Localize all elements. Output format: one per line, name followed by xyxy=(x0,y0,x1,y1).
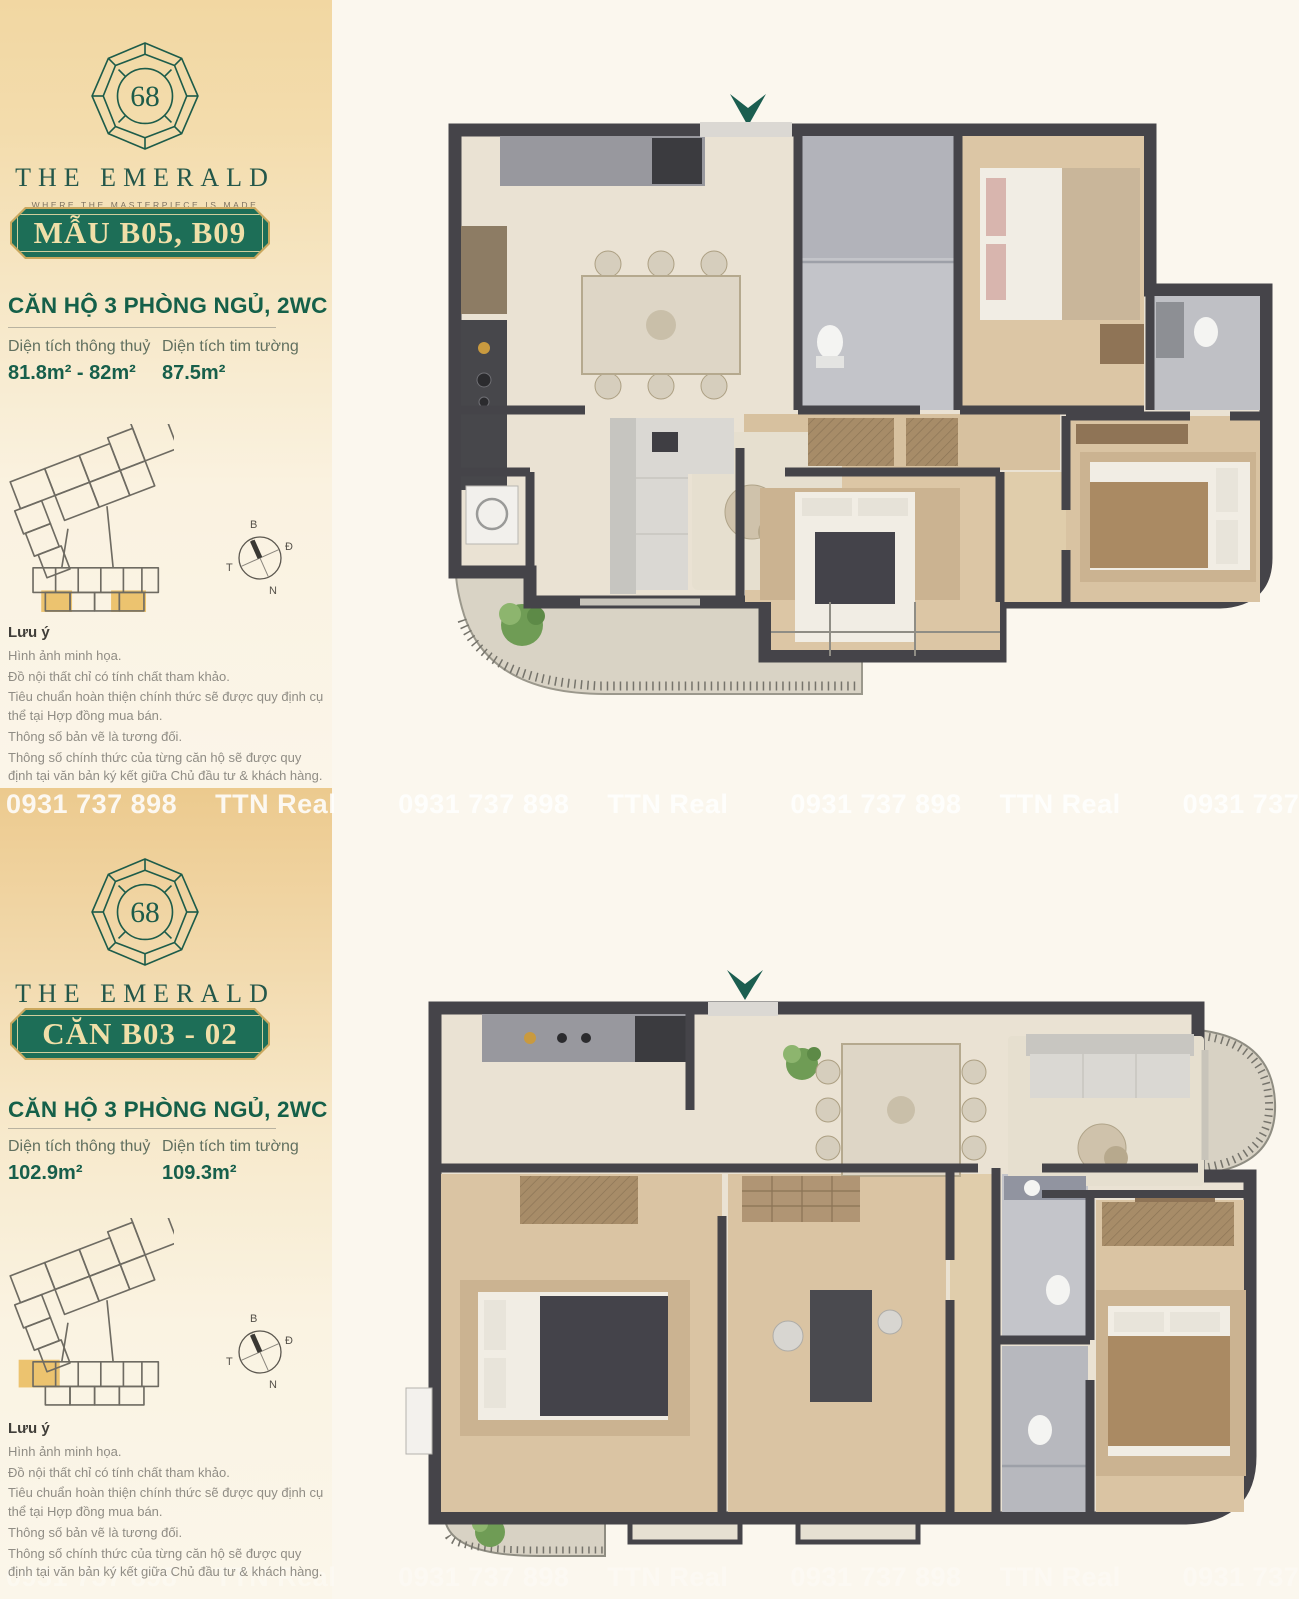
floor-plan-b03-02 xyxy=(390,960,1299,1560)
panel1-area-net: Diện tích thông thuỷ 81.8m² - 82m² xyxy=(8,338,150,385)
svg-text:68: 68 xyxy=(130,897,160,929)
building-locator xyxy=(4,424,174,614)
poster-page: 68 THE EMERALD WHERE THE MASTERPIECE IS … xyxy=(0,0,1299,1599)
panel2-badge-label: CĂN B03 - 02 xyxy=(42,1016,237,1052)
compass-north-label: B xyxy=(250,519,257,531)
svg-text:B: B xyxy=(250,1313,257,1325)
watermark-row: 0931 737 898TTN Real 0931 737 898TTN Rea… xyxy=(6,789,1299,820)
logo-number: 68 xyxy=(130,81,160,113)
brand-logo-2: 68 THE EMERALD WHERE THE MASTERPIECE IS … xyxy=(0,856,290,1026)
svg-text:Đ: Đ xyxy=(285,1335,293,1347)
divider xyxy=(8,1128,276,1129)
panel2-area-gross: Diện tích tim tường 109.3m² xyxy=(162,1138,299,1185)
svg-text:T: T xyxy=(226,1356,233,1368)
floor-plan-b05-b09 xyxy=(400,80,1299,710)
divider xyxy=(8,327,276,328)
logo-name: THE EMERALD xyxy=(0,163,290,193)
entry-arrow-icon xyxy=(730,94,766,126)
panel1-unit-type: CĂN HỘ 3 PHÒNG NGỦ, 2WC xyxy=(8,293,328,319)
compass-east-label: Đ xyxy=(285,541,293,553)
panel1-badge-label: MẪU B05, B09 xyxy=(34,215,247,251)
compass-icon: B Đ T N xyxy=(220,1308,300,1392)
svg-text:N: N xyxy=(269,1379,277,1391)
logo-emblem-icon: 68 xyxy=(89,40,201,152)
panel1-notes: Lưu ý Hình ảnh minh họa. Đồ nội thất chỉ… xyxy=(8,624,326,788)
compass-south-label: N xyxy=(269,585,277,597)
panel1-badge: MẪU B05, B09 xyxy=(10,207,270,259)
panel2-unit-type: CĂN HỘ 3 PHÒNG NGỦ, 2WC xyxy=(8,1097,328,1123)
panel1-area-gross: Diện tích tim tường 87.5m² xyxy=(162,338,299,385)
building-locator xyxy=(4,1218,174,1408)
highlighted-unit-b09 xyxy=(111,590,146,612)
logo-emblem-icon: 68 xyxy=(89,856,201,968)
panel2-badge: CĂN B03 - 02 xyxy=(10,1008,270,1060)
compass-icon: B Đ T N xyxy=(220,514,300,598)
compass-west-label: T xyxy=(226,562,233,574)
panel2-area-net: Diện tích thông thuỷ 102.9m² xyxy=(8,1138,150,1185)
entry-arrow-icon xyxy=(727,970,763,1000)
panel2-notes: Lưu ý Hình ảnh minh họa. Đồ nội thất chỉ… xyxy=(8,1420,326,1584)
highlighted-unit-b03-02 xyxy=(19,1360,60,1388)
brand-logo: 68 THE EMERALD WHERE THE MASTERPIECE IS … xyxy=(0,40,290,210)
